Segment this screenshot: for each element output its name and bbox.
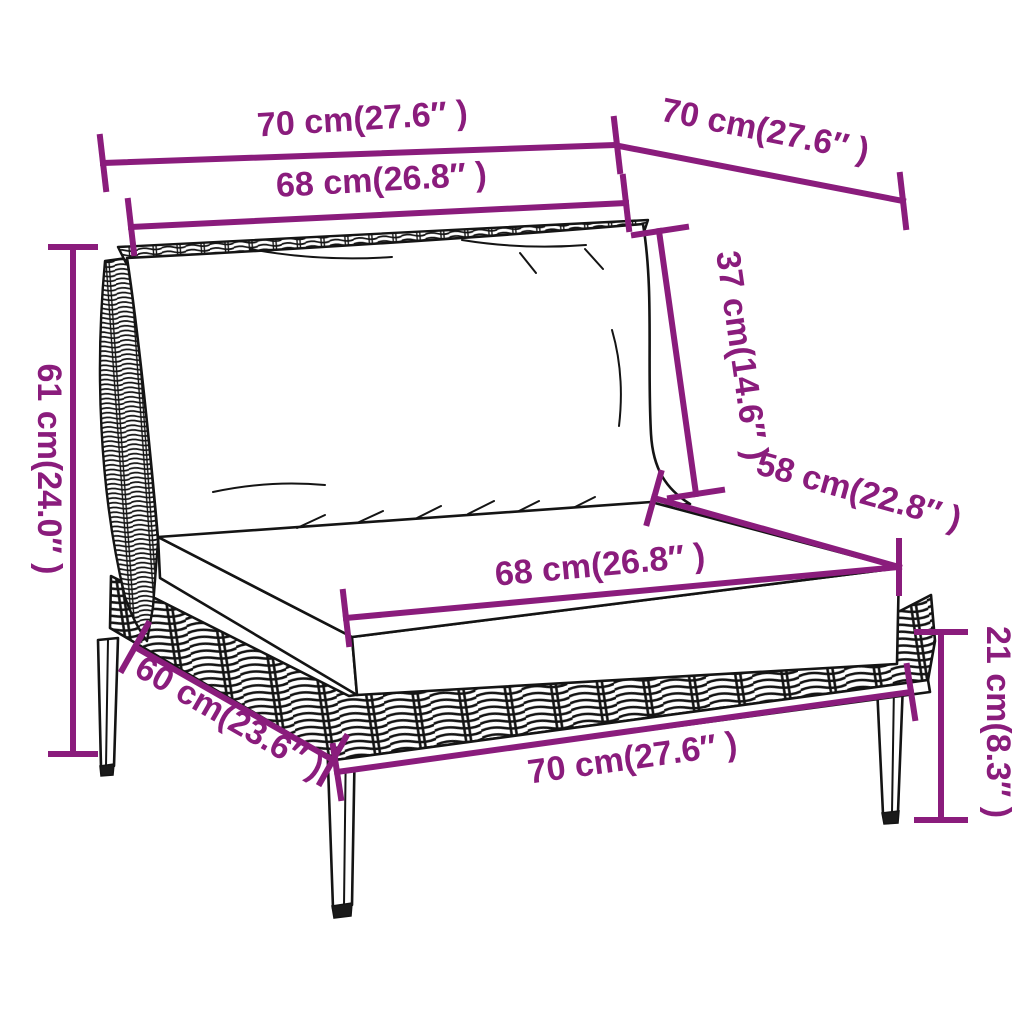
dim-overall-depth-cap-right: [900, 175, 906, 227]
dim-seat-depth-label: 58 cm(22.8″ ): [752, 445, 965, 539]
dim-overall-width-label: 70 cm(27.6″ ): [256, 94, 469, 145]
dim-back-cushion-width-cap-left: [128, 201, 134, 253]
back-cushion-body: [127, 224, 690, 538]
back-cushion: [127, 224, 690, 538]
front-left-leg-foot: [332, 903, 352, 918]
dim-overall-height: 61 cm(24.0″ ): [30, 247, 95, 754]
dim-back-cushion-height-label: 37 cm(14.6″ ): [708, 248, 775, 462]
dim-back-cushion-height-line: [659, 231, 696, 494]
product-dimension-image: 70 cm(27.6″ ) 70 cm(27.6″ ) 68 cm(26.8″ …: [0, 0, 1024, 1024]
dim-leg-height-label: 21 cm(8.3″ ): [979, 626, 1017, 818]
back-left-leg-foot: [100, 764, 114, 776]
front-right-leg-body: [877, 683, 903, 814]
back-left-leg: [98, 638, 118, 776]
dim-back-cushion-width-label: 68 cm(26.8″ ): [275, 155, 488, 205]
dim-overall-width-line: [103, 145, 616, 163]
dim-overall-height-label: 61 cm(24.0″ ): [30, 364, 68, 575]
dim-overall-width-cap-left: [100, 137, 106, 189]
front-right-leg: [877, 683, 903, 824]
dim-back-cushion-width-line: [131, 203, 626, 227]
dim-back-cushion-height-cap-bottom: [670, 490, 722, 498]
front-right-leg-foot: [882, 811, 899, 824]
dim-overall-depth: 70 cm(27.6″ ): [619, 91, 906, 227]
sofa-dimension-diagram: 70 cm(27.6″ ) 70 cm(27.6″ ) 68 cm(26.8″ …: [0, 0, 1024, 1024]
